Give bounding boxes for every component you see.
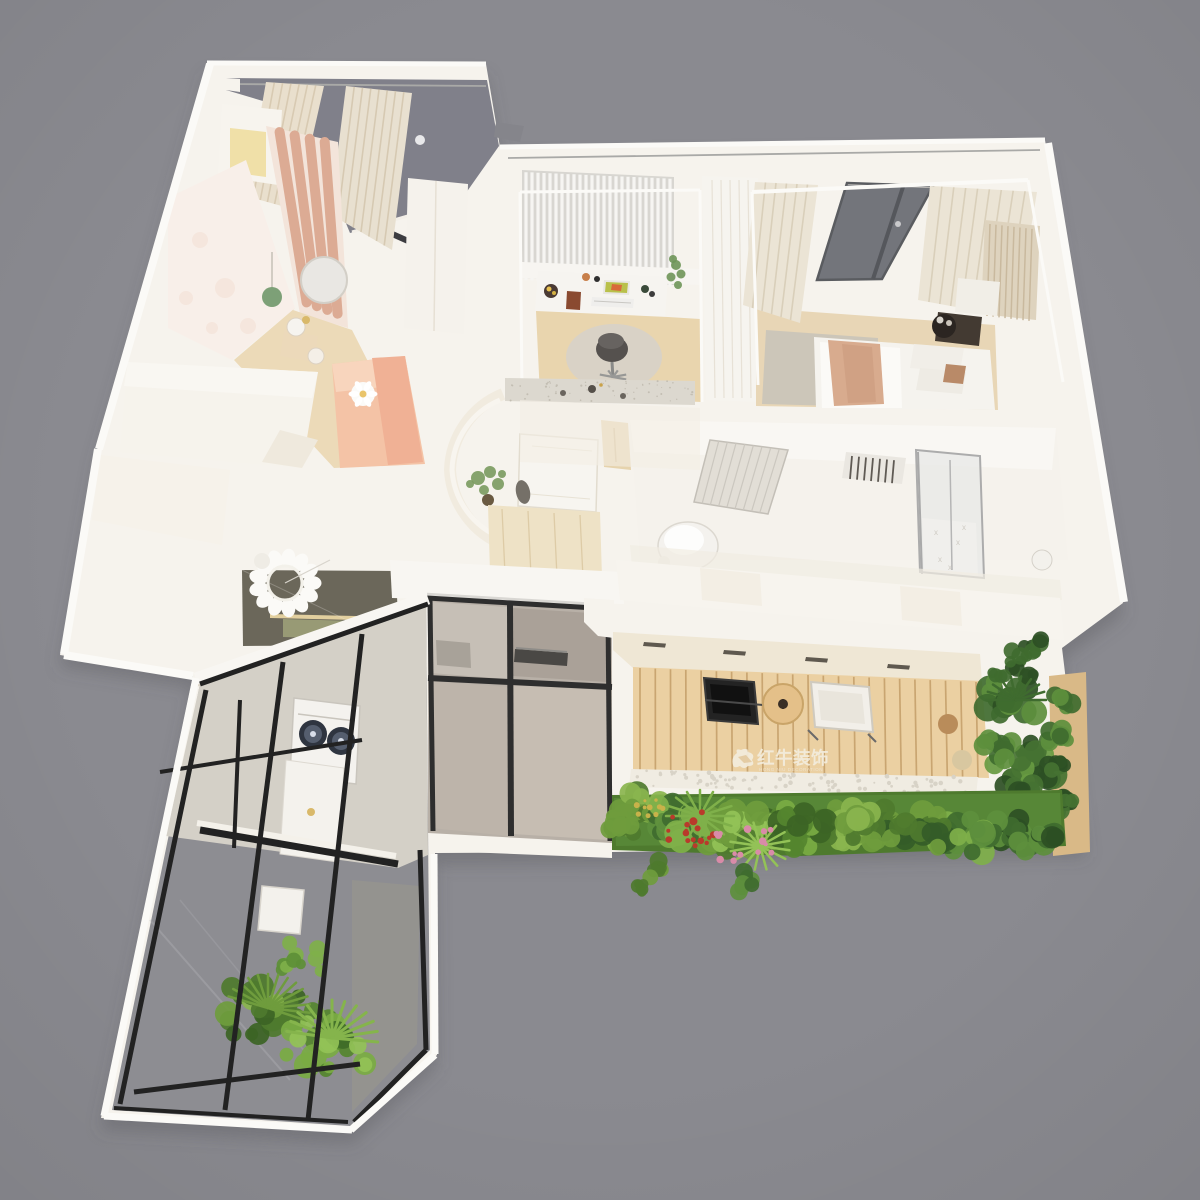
svg-text:x: x	[962, 523, 966, 532]
svg-text:®: ®	[744, 749, 749, 756]
svg-text:x: x	[934, 528, 938, 537]
svg-text:x: x	[956, 538, 960, 547]
svg-text:HONG NIU DECORATION: HONG NIU DECORATION	[759, 767, 823, 772]
svg-text:红牛装饰: 红牛装饰	[757, 748, 829, 768]
svg-text:x: x	[938, 555, 942, 564]
